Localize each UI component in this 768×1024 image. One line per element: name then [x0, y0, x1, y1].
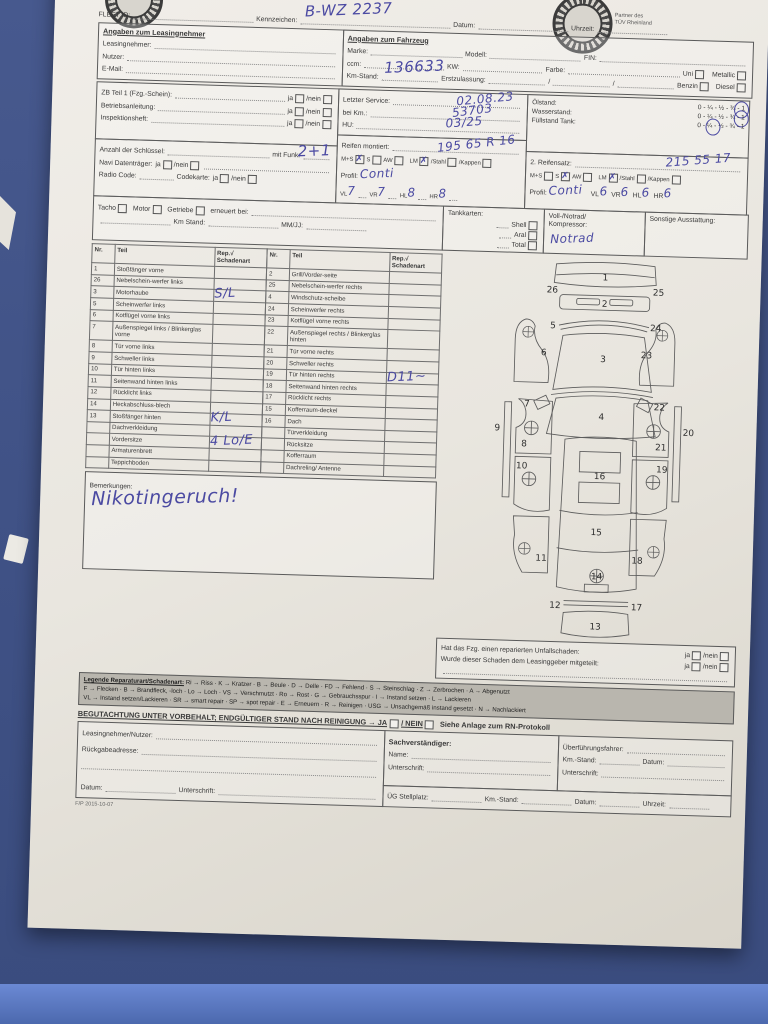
depth-vl1: 7: [347, 183, 356, 197]
oelstand-label: Ölstand:: [532, 99, 557, 107]
hu-label: HU:: [342, 122, 354, 129]
car-diagram-svg: 1262525243623722482192010191611181514121…: [436, 254, 747, 647]
diagram-part-number: 5: [550, 321, 556, 331]
profil2-label: Profil:: [529, 189, 547, 197]
benzin-checkbox: [700, 82, 709, 91]
motor-label: Motor: [133, 205, 151, 213]
fleet-id-line: [133, 10, 253, 23]
diagram-part-number: 17: [631, 603, 643, 613]
diagram-part-number: 15: [590, 528, 602, 538]
tankkarte-checkbox: [528, 221, 537, 230]
getriebe-label: Getriebe: [167, 206, 193, 214]
table-surface-band: [0, 984, 768, 1024]
navi-label: Navi Datenträger:: [99, 159, 152, 168]
diagram-part-number: 18: [631, 556, 643, 566]
ms2-checkbox: [544, 171, 553, 180]
tank-mark: [705, 118, 720, 135]
lm1-checkbox: [420, 156, 429, 165]
diagram-part-number: 10: [516, 461, 528, 471]
inspection-form-sheet: Partner des TÜV Rheinland FLEET ID: Kenn…: [27, 0, 768, 949]
unfall-ja-checkbox: [692, 651, 701, 660]
reifensatz2-label: 2. Reifensatz:: [530, 159, 572, 167]
diagram-part-number: 19: [656, 465, 668, 475]
codekarte-label: Codekarte:: [176, 174, 209, 182]
profil1-handwritten: Conti: [360, 166, 394, 181]
diagram-part-number: 2: [602, 300, 608, 310]
reifensatz2-box: 2. Reifensatz: 215 55 17 M+S S AW LM/ St…: [524, 151, 749, 216]
nein-checkbox: [322, 120, 331, 129]
tankkarte-checkbox: [528, 231, 537, 240]
vorbehalt-ja-checkbox: [390, 720, 399, 729]
erstzulassung-label: Erstzulassung:: [441, 75, 486, 83]
diagram-part-number: 16: [594, 472, 606, 482]
kennzeichen-label: Kennzeichen:: [256, 16, 297, 24]
metallic-label: Metallic: [712, 71, 735, 79]
reifen-montiert-label: Reifen montiert:: [341, 143, 389, 151]
s1-checkbox: [372, 155, 381, 164]
fleet-id-label: FLEET ID:: [98, 11, 130, 19]
diagram-part-number: 22: [654, 403, 666, 413]
ja-checkbox: [294, 119, 303, 128]
ms1-checkbox: [355, 154, 364, 163]
tankkarten-box: Tankkarten: Shell Aral: [442, 206, 545, 254]
sig-ln-label: Leasingnehmer/Nutzer:: [82, 730, 153, 739]
s2-checkbox: [561, 172, 570, 181]
diagram-part-number: 20: [683, 429, 695, 439]
km-stand-label: Km-Stand:: [346, 73, 378, 81]
diagram-part-number: 1: [603, 273, 609, 283]
diagram-part-number: 21: [655, 443, 667, 453]
sachverstaendiger-box: Sachverständiger: Name: Unterschrift:: [382, 730, 559, 791]
unfallschaden-box: Hat das Fzg. einen reparierten Unfallsch…: [435, 638, 736, 688]
ueberfuehrungsfahrer-box: Überführungsfahrer: Km.-Stand: Datum: Un…: [557, 736, 734, 797]
tankkarten-label: Tankkarten:: [448, 210, 483, 218]
aw2-checkbox: [583, 172, 592, 181]
aw1-checkbox: [394, 156, 403, 165]
ueg-label: ÜG Stellplatz:: [387, 794, 429, 802]
datum-label: Datum:: [453, 22, 475, 30]
mit-funk-label: mit Funk:: [272, 152, 300, 160]
depth-vr2: 6: [620, 185, 629, 199]
tankkarte-checkbox: [528, 241, 537, 250]
dokumente-box: ZB Teil 1 (Fzg.-Schein): ja / nein Betri…: [95, 81, 339, 146]
vorbehalt-nein-checkbox: [425, 721, 434, 730]
ausstattung-label: Sonstige Ausstattung:: [649, 216, 715, 225]
km-stand2-label: Km Stand:: [173, 219, 205, 227]
leasingnehmer-fields: Leasingnehmer: Nutzer: E-Mail:: [102, 38, 339, 79]
unfall-nein-checkbox: [720, 652, 729, 661]
diagram-part-number: 13: [589, 622, 601, 632]
ccm-label: ccm:: [347, 60, 362, 67]
diagram-part-number: 14: [591, 572, 603, 582]
leasingnehmer-signature-box: Leasingnehmer/Nutzer: Rückgabeadresse: D…: [75, 721, 385, 807]
ja-checkbox: [295, 94, 304, 103]
diagram-part-number: 4: [598, 413, 604, 423]
tacho-label: Tacho: [98, 204, 116, 212]
diesel-checkbox: [737, 83, 746, 92]
schluessel-handwritten: 2+1: [297, 141, 331, 160]
benzin-label: Benzin: [677, 82, 698, 90]
reifen-montiert-box: Reifen montiert: 195 65 R 16 M+S S AW LM…: [335, 134, 527, 209]
diagram-part-number: 8: [521, 439, 527, 449]
ausstattung-box: Sonstige Ausstattung:: [643, 212, 749, 260]
hu-handwritten: 03/25: [445, 113, 483, 130]
km-stand-handwritten: 136633: [384, 56, 445, 76]
leasingnehmer-box: Angaben zum Leasingnehmer Leasingnehmer:…: [97, 22, 344, 86]
bemerkungen-box: Bemerkungen: Nikotingeruch!: [82, 471, 437, 579]
depth-hr2: 6: [663, 186, 672, 200]
uhrzeit-label: Uhrzeit:: [571, 25, 595, 33]
uni-checkbox: [695, 70, 704, 79]
bemerkungen-handwritten: Nikotingeruch!: [91, 485, 239, 510]
profil1-label: Profil:: [341, 173, 359, 181]
diagram-part-number: 25: [653, 289, 665, 299]
diagram-part-number: 12: [549, 601, 561, 611]
diesel-label: Diesel: [716, 84, 735, 92]
notrad-handwritten: Notrad: [550, 231, 594, 247]
fahrzeug-box: Angaben zum Fahrzeug Marke: Modell: FIN:…: [341, 29, 754, 98]
mmjj-label: MM/JJ:: [281, 222, 303, 230]
diagram-part-number: 9: [494, 423, 500, 433]
schluessel-box: Anzahl der Schlüssel: mit Funk: 2+1 Navi…: [93, 138, 337, 203]
profil2-handwritten: Conti: [549, 183, 583, 198]
sig-adresse-label: Rückgabeadresse:: [82, 746, 139, 755]
depth-hr1: 8: [438, 186, 447, 200]
sv-title: Sachverständiger:: [389, 737, 452, 748]
depth-hl2: 6: [641, 186, 650, 200]
kw-label: KW:: [447, 63, 460, 70]
damage-table-left: Nr. Teil Rep.√Schadenart 1: [85, 243, 268, 473]
letzter-service-label: Letzter Service:: [343, 97, 390, 105]
paper-corner-under: [0, 196, 16, 250]
diagram-part-number: 11: [535, 554, 547, 564]
notrad-box: Voll-/Notrad/ Kompressor: Notrad: [543, 209, 646, 257]
nein-checkbox: [322, 107, 331, 116]
fuellstand-tank-label: Füllstand Tank:: [531, 117, 575, 125]
lm2-checkbox: [608, 173, 617, 182]
farbe-label: Farbe:: [545, 66, 565, 74]
nein-checkbox: [323, 95, 332, 104]
tankkarte-row: Total: [447, 238, 539, 250]
diagram-part-number: 7: [524, 399, 530, 409]
marke-label: Marke:: [347, 48, 368, 56]
erneuert-label: erneuert bei:: [210, 207, 248, 215]
kennzeichen-line: B-WZ 2237: [300, 15, 450, 28]
diagram-part-number: 23: [641, 351, 653, 361]
diagram-part-number: 3: [600, 355, 606, 365]
fuellstaende-box: Ölstand: 0 - ¼ - ½ - ¾ - 1 Wasserstand: …: [526, 94, 751, 159]
diagram-part-number: 26: [547, 285, 559, 295]
diagram-part-number: 6: [541, 348, 547, 358]
diagram-part-number: 24: [650, 324, 662, 334]
uni-label: Uni: [683, 70, 693, 77]
radio-code-label: Radio Code:: [99, 172, 137, 180]
bei-km-label: bei Km.:: [342, 109, 367, 117]
metallic-checkbox: [737, 71, 746, 80]
fin-label: FIN:: [584, 55, 597, 62]
depth-vr1: 7: [377, 184, 386, 198]
depth-hl1: 8: [407, 185, 416, 199]
ja-checkbox: [295, 107, 304, 116]
modell-label: Modell:: [465, 51, 487, 59]
photo-of-form: Partner des TÜV Rheinland FLEET ID: Kenn…: [0, 0, 768, 1024]
depth-vl2: 6: [599, 184, 608, 198]
uef-label: Überführungsfahrer:: [563, 744, 624, 753]
wasserstand-label: Wasserstand:: [532, 108, 572, 116]
anzahl-schluessel-label: Anzahl der Schlüssel:: [99, 147, 165, 156]
damage-table-right: Nr. Teil Rep.√Schadenart 2: [260, 248, 443, 478]
service-box: Letzter Service: bei Km.: HU: 02.08.23 5…: [337, 88, 529, 141]
kennzeichen-handwritten: B-WZ 2237: [304, 0, 392, 20]
paper-corner-under-2: [3, 534, 29, 564]
